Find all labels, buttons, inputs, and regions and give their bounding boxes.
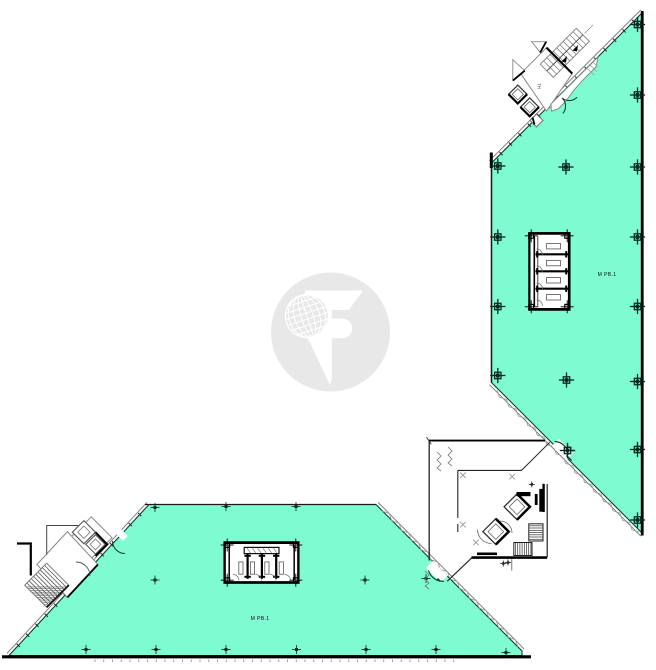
svg-text:M PB.1: M PB.1 bbox=[598, 272, 617, 278]
svg-text:TH: TH bbox=[537, 83, 542, 89]
svg-text:M PB.1: M PB.1 bbox=[251, 616, 270, 622]
